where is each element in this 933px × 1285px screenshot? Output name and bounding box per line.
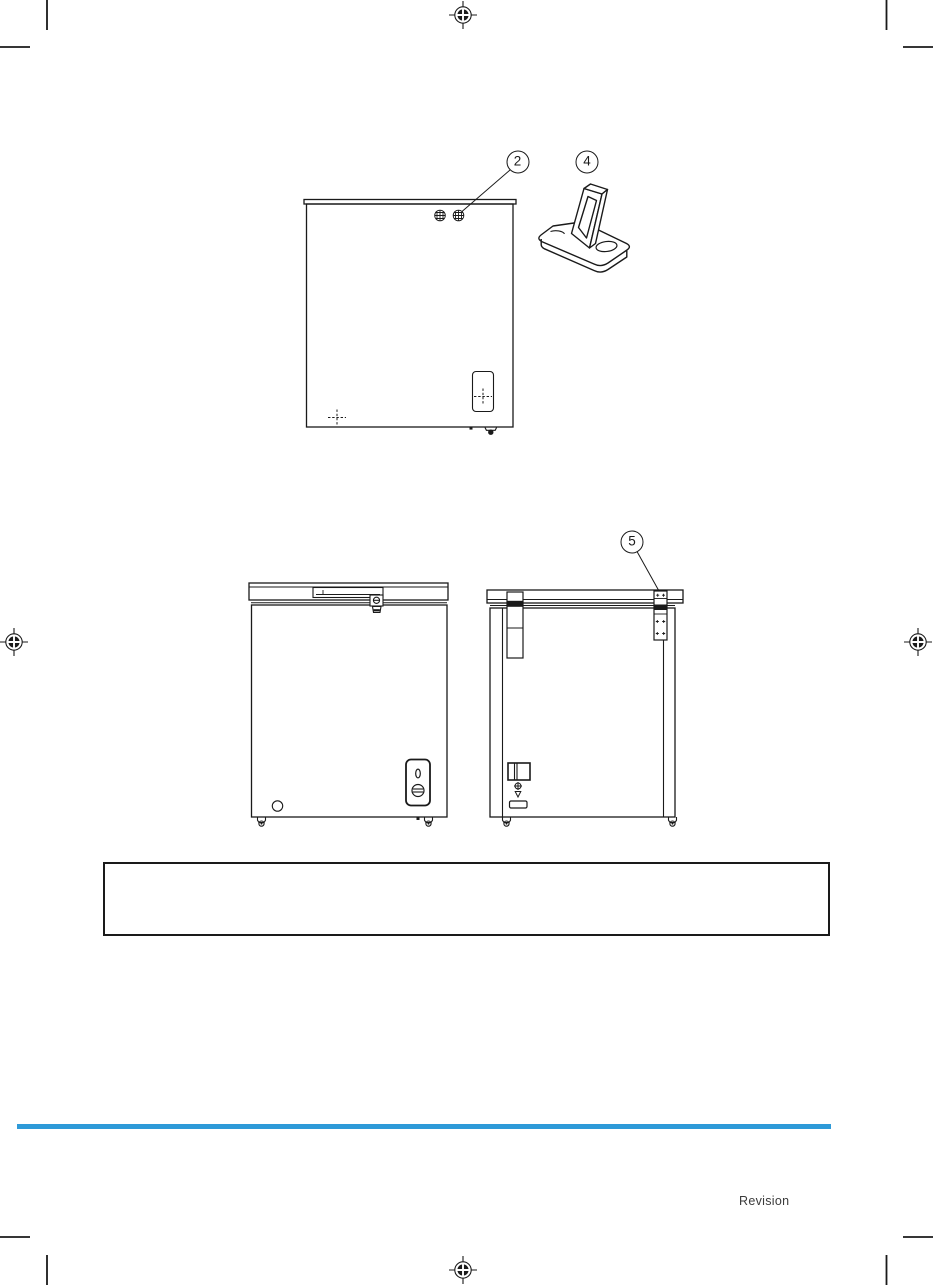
ground-screw-icon	[514, 782, 522, 797]
crop-marks	[0, 0, 933, 1285]
lid-strap-bracket-icon	[507, 592, 523, 658]
diagram-lineart	[0, 0, 933, 1285]
note-box	[103, 862, 830, 936]
rating-plate-icon	[510, 801, 528, 808]
callout-2-leader	[462, 170, 510, 212]
callout-5-leader	[637, 552, 659, 592]
callout-number: 2	[514, 155, 522, 169]
revision-label: Revision	[739, 1194, 789, 1208]
figure-freezer-front-view	[249, 583, 448, 826]
lid-screws-icon	[435, 210, 464, 221]
lid-hinge-icon	[654, 591, 667, 640]
callout-lid-hinge: 5	[621, 530, 644, 553]
control-panel-icon	[406, 760, 430, 806]
callout-number: 4	[583, 155, 591, 169]
figure-hinge-cover-part	[539, 184, 630, 272]
registration-marks	[0, 1, 932, 1284]
callout-lid-screws: 2	[506, 150, 529, 173]
figure-freezer-rear-view	[487, 552, 683, 827]
callout-hinge-cover: 4	[576, 150, 599, 173]
footer-divider	[17, 1124, 831, 1129]
drain-hole-icon	[272, 801, 282, 811]
manual-page: 2 4 5 Revision	[0, 0, 933, 1285]
figure-freezer-top-view	[304, 170, 516, 435]
lid-lock-icon	[370, 595, 383, 613]
terminal-box-icon	[508, 763, 530, 780]
callout-number: 5	[628, 535, 636, 549]
